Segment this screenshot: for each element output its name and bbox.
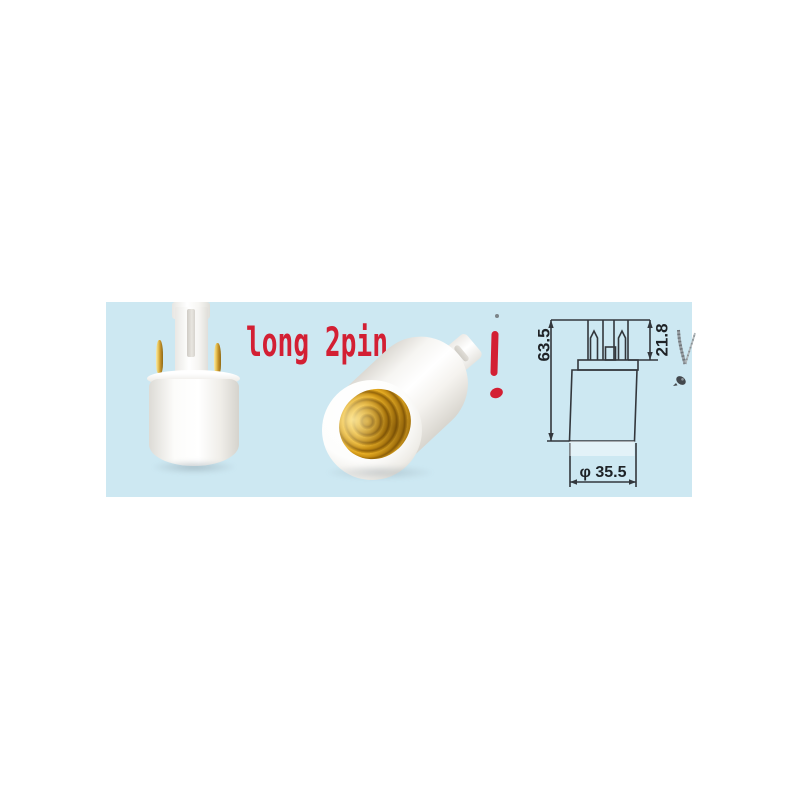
product-image: long 2pin <box>0 0 800 800</box>
socket-shadow <box>325 465 435 480</box>
dimension-height-label: 63.5 <box>535 328 554 361</box>
screws <box>673 330 695 387</box>
collar-outline <box>578 360 638 370</box>
g24-tube <box>175 307 208 374</box>
body-outline <box>570 370 638 441</box>
arrow-height-bottom <box>548 433 553 441</box>
dimension-arrows <box>548 320 652 485</box>
gold-pin-right <box>214 343 221 374</box>
drop-shadow <box>151 460 237 474</box>
dust-speck <box>495 314 499 318</box>
exclamation-dot <box>489 386 505 400</box>
drawing-lines <box>547 320 658 487</box>
gold-pin-left <box>156 340 163 373</box>
adapter-socket-view <box>315 325 500 490</box>
exclamation-mark <box>488 328 508 403</box>
arrow-diameter-left <box>570 479 577 484</box>
short-screw-tip <box>673 383 678 386</box>
arrow-height-top <box>548 320 553 328</box>
exclamation-bar <box>490 331 498 376</box>
technical-drawing: 63.5 21.8 φ 35.5 <box>535 300 700 500</box>
tube-key-slot <box>187 309 195 357</box>
screw-highlight <box>681 378 684 381</box>
pin-profile-right <box>619 331 626 360</box>
dimension-diameter-label: φ 35.5 <box>579 464 626 481</box>
pin-profile-left <box>591 331 598 360</box>
arrow-diameter-right <box>629 479 636 484</box>
adapter-front-view <box>146 300 242 478</box>
dimension-pin-label: 21.8 <box>653 323 672 356</box>
body-ghost-reflection <box>570 441 635 456</box>
pin-tube-outline <box>588 320 628 360</box>
adapter-body <box>149 379 239 466</box>
